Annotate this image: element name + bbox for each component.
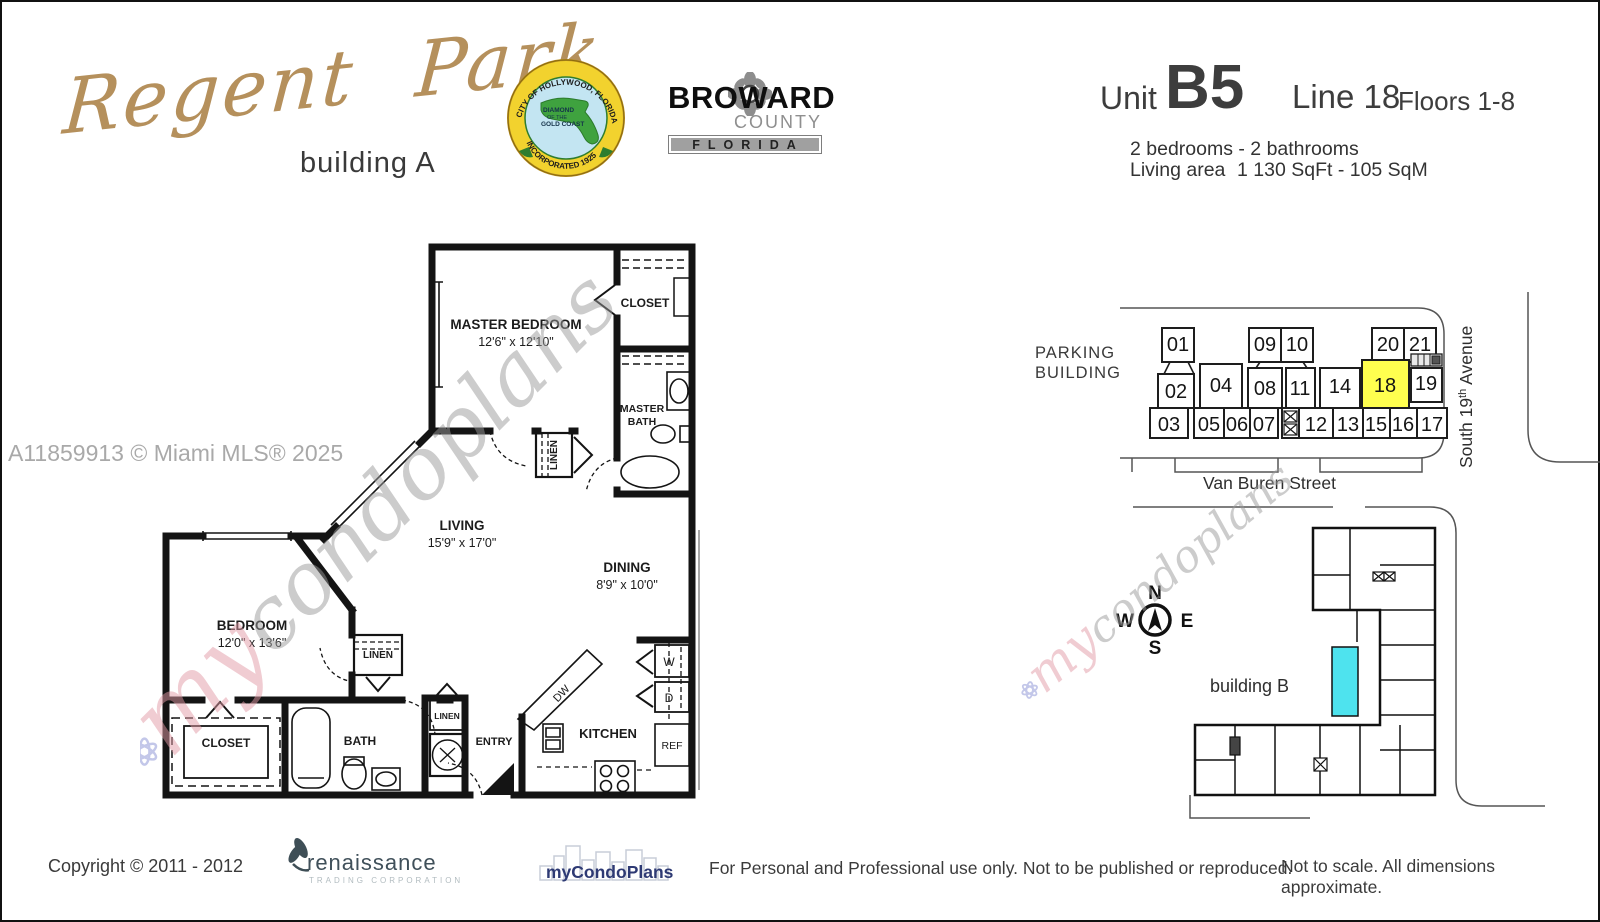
unit-20: 20 (1377, 334, 1399, 356)
unit-label: Unit (1100, 80, 1157, 117)
living-area-value: 1 130 SqFt - 105 SqM (1237, 159, 1428, 182)
unit-21: 21 (1409, 334, 1431, 356)
master-bath-fixtures (586, 372, 692, 492)
parking-label-1: PARKING (1035, 344, 1115, 362)
seal-center-1: DIAMOND (543, 107, 574, 114)
master-bath-label-1: MASTER (620, 403, 665, 415)
unit-05: 05 (1198, 414, 1220, 436)
hollywood-seal: CITY OF HOLLYWOOD, FLORIDA INCORPORATED … (505, 55, 627, 183)
south-19th-ave-road (1528, 292, 1600, 462)
broward-name: BROWARD (668, 80, 822, 116)
entry-door (448, 763, 514, 795)
unit-beds-baths: 2 bedrooms - 2 bathrooms (1130, 138, 1359, 161)
master-closet-label: CLOSET (621, 296, 670, 310)
mycondoplans-text: myCondoPlans (546, 862, 673, 883)
floor-plan: MASTER BEDROOM 12'6" x 12'10" CLOSET MAS… (140, 230, 700, 805)
unit-10: 10 (1286, 334, 1308, 356)
dishwasher-label: DW (551, 683, 573, 705)
unit-02: 02 (1165, 381, 1187, 403)
copyright-text: Copyright © 2011 - 2012 (48, 856, 243, 877)
renaissance-subtitle: TRADING CORPORATION (309, 876, 463, 885)
unit-17: 17 (1421, 414, 1443, 436)
entry-linen-label: LINEN (434, 711, 460, 721)
living-dims: 15'9" x 17'0" (428, 536, 497, 550)
compass-e: E (1181, 611, 1194, 632)
unit-line: Line 18 (1292, 78, 1400, 116)
renaissance-logo: renaissance TRADING CORPORATION (283, 836, 463, 885)
bath-label: BATH (344, 734, 376, 748)
renaissance-icon (283, 836, 317, 882)
building-b-outline (1195, 528, 1435, 795)
unit-09: 09 (1254, 334, 1276, 356)
watermark-script-left: mycondoplans (140, 244, 639, 795)
unit-08: 08 (1254, 378, 1276, 400)
building-b-label: building B (1210, 676, 1289, 696)
unit-14: 14 (1329, 376, 1351, 398)
unit-15: 15 (1365, 414, 1387, 436)
hall-linen-label: LINEN (549, 440, 560, 470)
usage-notice: For Personal and Professional use only. … (709, 858, 1292, 879)
dryer-label: D (665, 691, 674, 705)
living-label: LIVING (439, 518, 484, 533)
fridge-label: REF (662, 740, 683, 752)
unit-12: 12 (1305, 414, 1327, 436)
unit-18: 18 (1374, 375, 1396, 397)
dining-label: DINING (603, 560, 650, 575)
unit-16: 16 (1392, 414, 1414, 436)
south-ave-part1: South 19 (1456, 398, 1476, 468)
svg-text:mycondoplans: mycondoplans (1020, 448, 1304, 704)
unit-19: 19 (1415, 373, 1437, 395)
unit-01: 01 (1167, 334, 1189, 356)
center-linen-closet (320, 635, 402, 691)
mycondoplans-logo: myCondoPlans (538, 840, 672, 889)
building-a-label: building A (300, 147, 436, 180)
parking-label-2: BUILDING (1035, 364, 1121, 382)
south-19th-ave-label: South 19th Avenue (1456, 326, 1476, 468)
site-plan: 01 09 10 20 21 02 04 08 11 14 18 19 03 0… (1020, 290, 1600, 820)
south-ave-part2: Avenue (1456, 326, 1476, 389)
living-area-label: Living area (1130, 159, 1225, 182)
unit-03: 03 (1158, 414, 1180, 436)
watermark-condoplans: condoplans (217, 251, 638, 672)
unit-11: 11 (1290, 378, 1311, 400)
broward-state-bar: FLORIDA (668, 135, 822, 154)
center-linen-label: LINEN (363, 650, 393, 661)
scale-note: Not to scale. All dimensions approximate… (1281, 856, 1600, 898)
master-bath-label-2: BATH (628, 416, 656, 428)
broward-logo: BROWARD COUNTY FLORIDA (668, 80, 822, 154)
unit-floors: Floors 1-8 (1398, 86, 1515, 117)
kitchen-label: KITCHEN (579, 726, 637, 741)
dining-dims: 8'9" x 10'0" (596, 578, 658, 592)
compass-s: S (1149, 638, 1162, 659)
seal-center-3: GOLD COAST (541, 121, 584, 128)
entry-closets (430, 684, 465, 776)
unit-number: B5 (1165, 52, 1244, 123)
entry-label: ENTRY (476, 736, 514, 748)
pool (1332, 647, 1358, 716)
south-ave-sup: th (1457, 389, 1469, 398)
unit-13: 13 (1337, 414, 1359, 436)
flyer-page: Regent Park building A CITY OF HOLLYWOOD… (0, 0, 1600, 922)
renaissance-name: renaissance (307, 850, 463, 876)
unit-07: 07 (1253, 414, 1275, 436)
washer-label: W (663, 655, 675, 669)
watermark-script-right: mycondoplans (1020, 448, 1304, 715)
unit-06: 06 (1226, 414, 1248, 436)
unit-04: 04 (1210, 375, 1232, 397)
